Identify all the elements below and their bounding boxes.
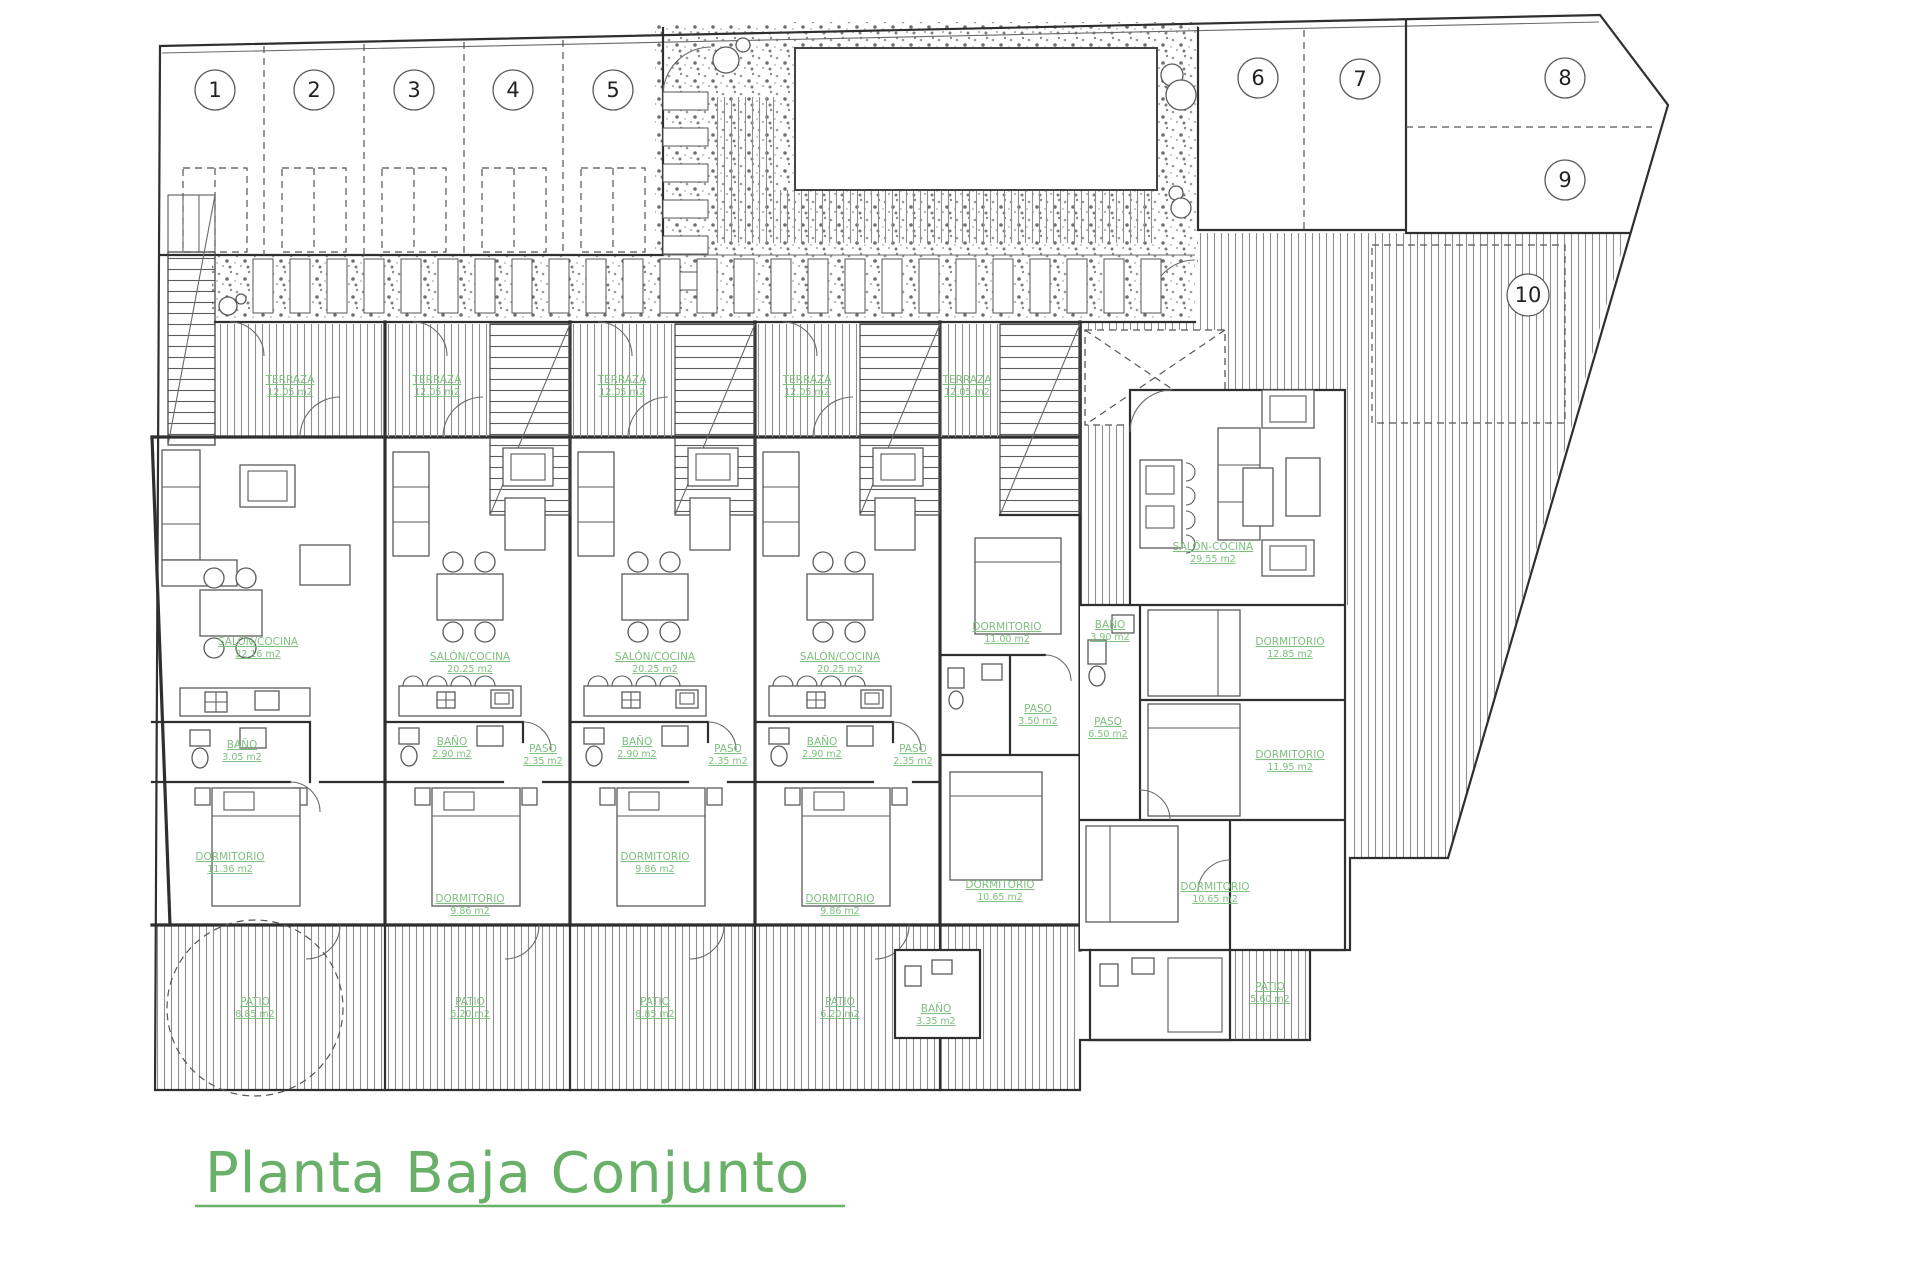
room-area: 11.36 m2 [207, 864, 253, 875]
room-area: 12.05 m2 [267, 387, 313, 398]
room-label: PATIO [240, 996, 270, 1008]
room-label: PATIO [825, 996, 855, 1008]
pool [795, 48, 1157, 190]
parking-number: 2 [307, 78, 320, 102]
room-area: 6.50 m2 [1088, 729, 1127, 740]
room-label: BAÑO [437, 735, 468, 748]
room-label: BAÑO [1095, 618, 1126, 631]
room-area: 6.20 m2 [450, 1009, 489, 1020]
shrub-icon [1166, 80, 1196, 110]
room-area: 11.95 m2 [1267, 762, 1313, 773]
walkway-slabs [219, 255, 1195, 315]
room-label: TERRAZA [597, 374, 648, 386]
room-area: 12.05 m2 [944, 387, 990, 398]
room-label: DORMITORIO [195, 851, 264, 863]
room-area: 10.65 m2 [1192, 894, 1238, 905]
room-area: 6.20 m2 [820, 1009, 859, 1020]
room-label: BAÑO [622, 735, 653, 748]
room-label: PASO [1094, 716, 1122, 728]
shrub-icon [713, 47, 739, 73]
parking-number: 1 [208, 78, 221, 102]
room-label: SALÓN/COCINA [800, 650, 881, 663]
room-label: SALÓN/COCINA [218, 635, 299, 648]
parking-number: 6 [1251, 66, 1264, 90]
shrub-icon [236, 294, 246, 304]
room-area: 2.35 m2 [893, 756, 932, 767]
shrub-icon [736, 38, 750, 52]
floor-plan-svg: 1 2 3 4 5 6 7 8 9 10 TERRAZA12.05 m2 TER… [0, 0, 1920, 1280]
room-area: 20.25 m2 [632, 664, 678, 675]
room-area: 12.05 m2 [599, 387, 645, 398]
room-area: 20.25 m2 [447, 664, 493, 675]
room-area: 2.90 m2 [617, 749, 656, 760]
parking-number: 7 [1353, 67, 1366, 91]
room-area: 12.05 m2 [414, 387, 460, 398]
room-label: PATIO [640, 996, 670, 1008]
shrub-icon [1171, 198, 1191, 218]
room-label: PATIO [1255, 981, 1285, 993]
room-label: TERRAZA [265, 374, 316, 386]
room-area: 9.86 m2 [820, 906, 859, 917]
room-label: PASO [529, 743, 557, 755]
room-label: DORMITORIO [805, 893, 874, 905]
room-area: 3.90 m2 [1090, 632, 1129, 643]
room-label: TERRAZA [782, 374, 833, 386]
room-label: SALÓN/COCINA [615, 650, 696, 663]
unit-typical [385, 322, 570, 959]
room-area: 2.90 m2 [802, 749, 841, 760]
exterior-stair-left [168, 195, 215, 445]
parking-number: 9 [1558, 168, 1571, 192]
floor-plan-sheet: 1 2 3 4 5 6 7 8 9 10 TERRAZA12.05 m2 TER… [0, 0, 1920, 1280]
room-label: DORMITORIO [435, 893, 504, 905]
room-area: 8.85 m2 [235, 1009, 274, 1020]
room-label: PATIO [455, 996, 485, 1008]
room-area: 2.35 m2 [708, 756, 747, 767]
room-area: 3.05 m2 [222, 752, 261, 763]
room-label: BAÑO [807, 735, 838, 748]
room-label: DORMITORIO [620, 851, 689, 863]
drawing-title: Planta Baja Conjunto [195, 1141, 845, 1206]
room-label: PASO [1024, 703, 1052, 715]
room-label: PASO [714, 743, 742, 755]
room-label: BAÑO [921, 1002, 952, 1015]
room-area: 22.16 m2 [235, 649, 281, 660]
room-label: SALÓN-COCINA [1173, 540, 1254, 553]
room-label: PASO [899, 743, 927, 755]
room-label: BAÑO [227, 738, 258, 751]
room-area: 3.50 m2 [1018, 716, 1057, 727]
room-label: DORMITORIO [1255, 749, 1324, 761]
parking-number: 8 [1558, 66, 1571, 90]
room-area: 29.55 m2 [1190, 554, 1236, 565]
room-label: SALÓN/COCINA [430, 650, 511, 663]
room-area: 20.25 m2 [817, 664, 863, 675]
parking-number: 5 [606, 78, 619, 102]
pool-deck-hatch [777, 190, 1157, 243]
room-area: 9.86 m2 [450, 906, 489, 917]
room-area: 3.35 m2 [916, 1016, 955, 1027]
room-area: 10.65 m2 [977, 892, 1023, 903]
room-area: 2.35 m2 [523, 756, 562, 767]
room-label: TERRAZA [942, 374, 993, 386]
parking-number: 4 [506, 78, 519, 102]
shrub-icon [219, 297, 237, 315]
parking-number: 3 [407, 78, 420, 102]
room-area: 8.85 m2 [635, 1009, 674, 1020]
page-title: Planta Baja Conjunto [205, 1141, 810, 1206]
pool-deck-hatch [717, 97, 777, 243]
room-label: DORMITORIO [1255, 636, 1324, 648]
room-area: 11.00 m2 [984, 634, 1030, 645]
room-label: DORMITORIO [965, 879, 1034, 891]
parking-block-1-5 [160, 28, 663, 255]
parking-number: 10 [1515, 283, 1542, 307]
room-area: 9.86 m2 [635, 864, 674, 875]
room-area: 12.05 m2 [784, 387, 830, 398]
room-label: TERRAZA [412, 374, 463, 386]
room-area: 2.90 m2 [432, 749, 471, 760]
room-area: 5.60 m2 [1250, 994, 1289, 1005]
room-label: DORMITORIO [1180, 881, 1249, 893]
room-area: 12.85 m2 [1267, 649, 1313, 660]
unit-4 [755, 322, 940, 959]
room-label: DORMITORIO [972, 621, 1041, 633]
